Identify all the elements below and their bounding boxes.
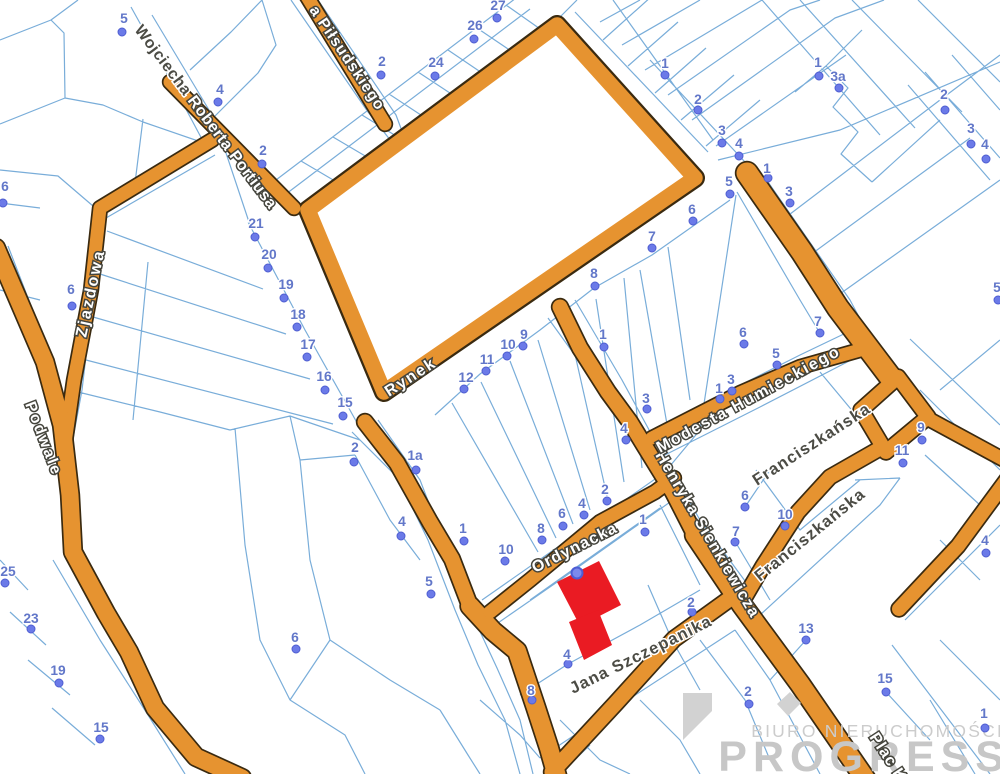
svg-text:2: 2 (744, 684, 752, 699)
svg-text:1: 1 (980, 706, 988, 721)
svg-text:6: 6 (67, 282, 75, 297)
svg-text:21: 21 (248, 216, 264, 231)
svg-text:2: 2 (351, 440, 359, 455)
svg-text:2: 2 (378, 54, 386, 69)
svg-text:3: 3 (785, 184, 793, 199)
svg-text:15: 15 (337, 395, 353, 410)
svg-text:5: 5 (772, 346, 780, 361)
svg-text:4: 4 (620, 421, 628, 436)
svg-text:6: 6 (739, 325, 747, 340)
svg-text:5: 5 (120, 11, 128, 26)
svg-text:5: 5 (425, 574, 433, 589)
svg-text:2: 2 (694, 92, 702, 107)
svg-text:7: 7 (648, 229, 656, 244)
svg-text:5: 5 (725, 174, 733, 189)
svg-text:1: 1 (639, 512, 647, 527)
svg-text:4: 4 (563, 647, 571, 662)
svg-text:2: 2 (687, 595, 695, 610)
svg-text:27: 27 (490, 0, 506, 13)
svg-text:2: 2 (940, 87, 948, 102)
svg-text:3: 3 (718, 123, 726, 138)
svg-text:15: 15 (93, 720, 109, 735)
svg-text:12: 12 (458, 370, 474, 385)
svg-text:19: 19 (50, 663, 66, 678)
svg-text:23: 23 (23, 611, 39, 626)
svg-text:5: 5 (993, 280, 1000, 295)
svg-text:11: 11 (480, 352, 495, 367)
svg-text:26: 26 (467, 18, 483, 33)
svg-text:13: 13 (798, 621, 814, 636)
svg-text:1: 1 (814, 55, 822, 70)
svg-text:3: 3 (967, 121, 975, 136)
svg-text:8: 8 (537, 521, 545, 536)
svg-text:25: 25 (0, 564, 16, 579)
svg-text:3: 3 (727, 372, 735, 387)
svg-text:2: 2 (601, 482, 609, 497)
svg-text:9: 9 (520, 327, 528, 342)
svg-text:10: 10 (777, 507, 793, 522)
svg-text:4: 4 (578, 496, 586, 511)
svg-text:1: 1 (763, 161, 771, 176)
svg-text:11: 11 (895, 443, 910, 458)
svg-text:8: 8 (590, 266, 598, 281)
svg-text:18: 18 (290, 307, 306, 322)
svg-text:4: 4 (216, 82, 224, 97)
svg-text:6: 6 (558, 506, 566, 521)
svg-text:8: 8 (527, 683, 535, 698)
svg-text:15: 15 (877, 671, 893, 686)
svg-text:2: 2 (259, 143, 267, 158)
svg-text:4: 4 (981, 533, 989, 548)
svg-text:4: 4 (981, 137, 989, 152)
svg-text:16: 16 (316, 369, 332, 384)
svg-text:17: 17 (300, 337, 316, 352)
svg-text:1a: 1a (407, 448, 423, 463)
svg-text:7: 7 (814, 314, 822, 329)
svg-text:1: 1 (715, 381, 723, 396)
svg-text:3: 3 (642, 391, 650, 406)
svg-text:1: 1 (459, 521, 467, 536)
svg-text:1: 1 (599, 327, 607, 342)
svg-text:6: 6 (291, 630, 299, 645)
svg-text:9: 9 (917, 420, 925, 435)
svg-text:4: 4 (398, 514, 406, 529)
svg-text:6: 6 (688, 202, 696, 217)
svg-text:10: 10 (500, 337, 516, 352)
svg-text:3a: 3a (830, 69, 846, 84)
svg-text:7: 7 (732, 524, 740, 539)
svg-text:6: 6 (741, 488, 749, 503)
svg-text:10: 10 (498, 542, 514, 557)
svg-text:4: 4 (735, 136, 743, 151)
svg-text:24: 24 (428, 55, 444, 70)
svg-text:1: 1 (661, 56, 669, 71)
svg-text:20: 20 (261, 247, 277, 262)
svg-text:PROGRESS: PROGRESS (718, 733, 1000, 774)
svg-text:6: 6 (1, 179, 9, 194)
svg-text:19: 19 (278, 277, 294, 292)
